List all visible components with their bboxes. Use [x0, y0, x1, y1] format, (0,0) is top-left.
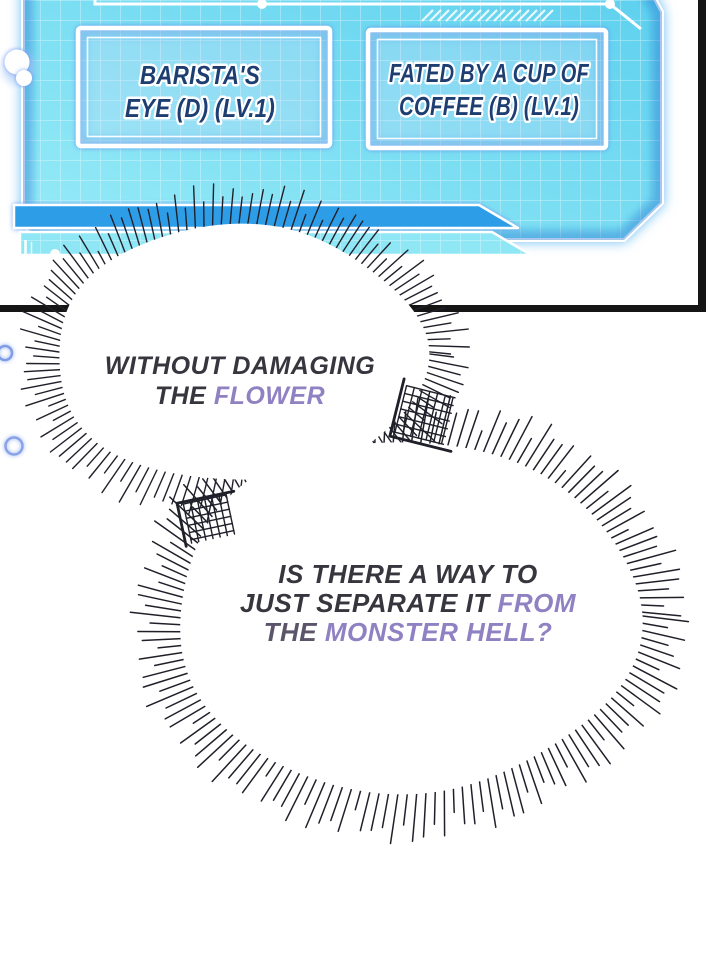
bubble1-line2: THE FLOWER [55, 381, 425, 411]
bubble1-text: WITHOUT DAMAGING THE FLOWER [55, 351, 425, 411]
ring-sparkle-icon [0, 346, 12, 360]
ring-sparkle-icon [6, 438, 23, 455]
bubble2-line3: THE MONSTER HELL? [220, 618, 596, 647]
bubble2-line2: JUST SEPARATE IT FROM [220, 589, 596, 618]
webtoon-page: BARISTA'S EYE (D) (LV.1) FATED BY A CUP … [0, 0, 720, 972]
bubble2-text: IS THERE A WAY TO JUST SEPARATE IT FROM … [220, 560, 596, 647]
speech-bubbles [0, 0, 720, 972]
bubble1-line1: WITHOUT DAMAGING [55, 351, 425, 381]
bubble2-line1: IS THERE A WAY TO [220, 560, 596, 589]
